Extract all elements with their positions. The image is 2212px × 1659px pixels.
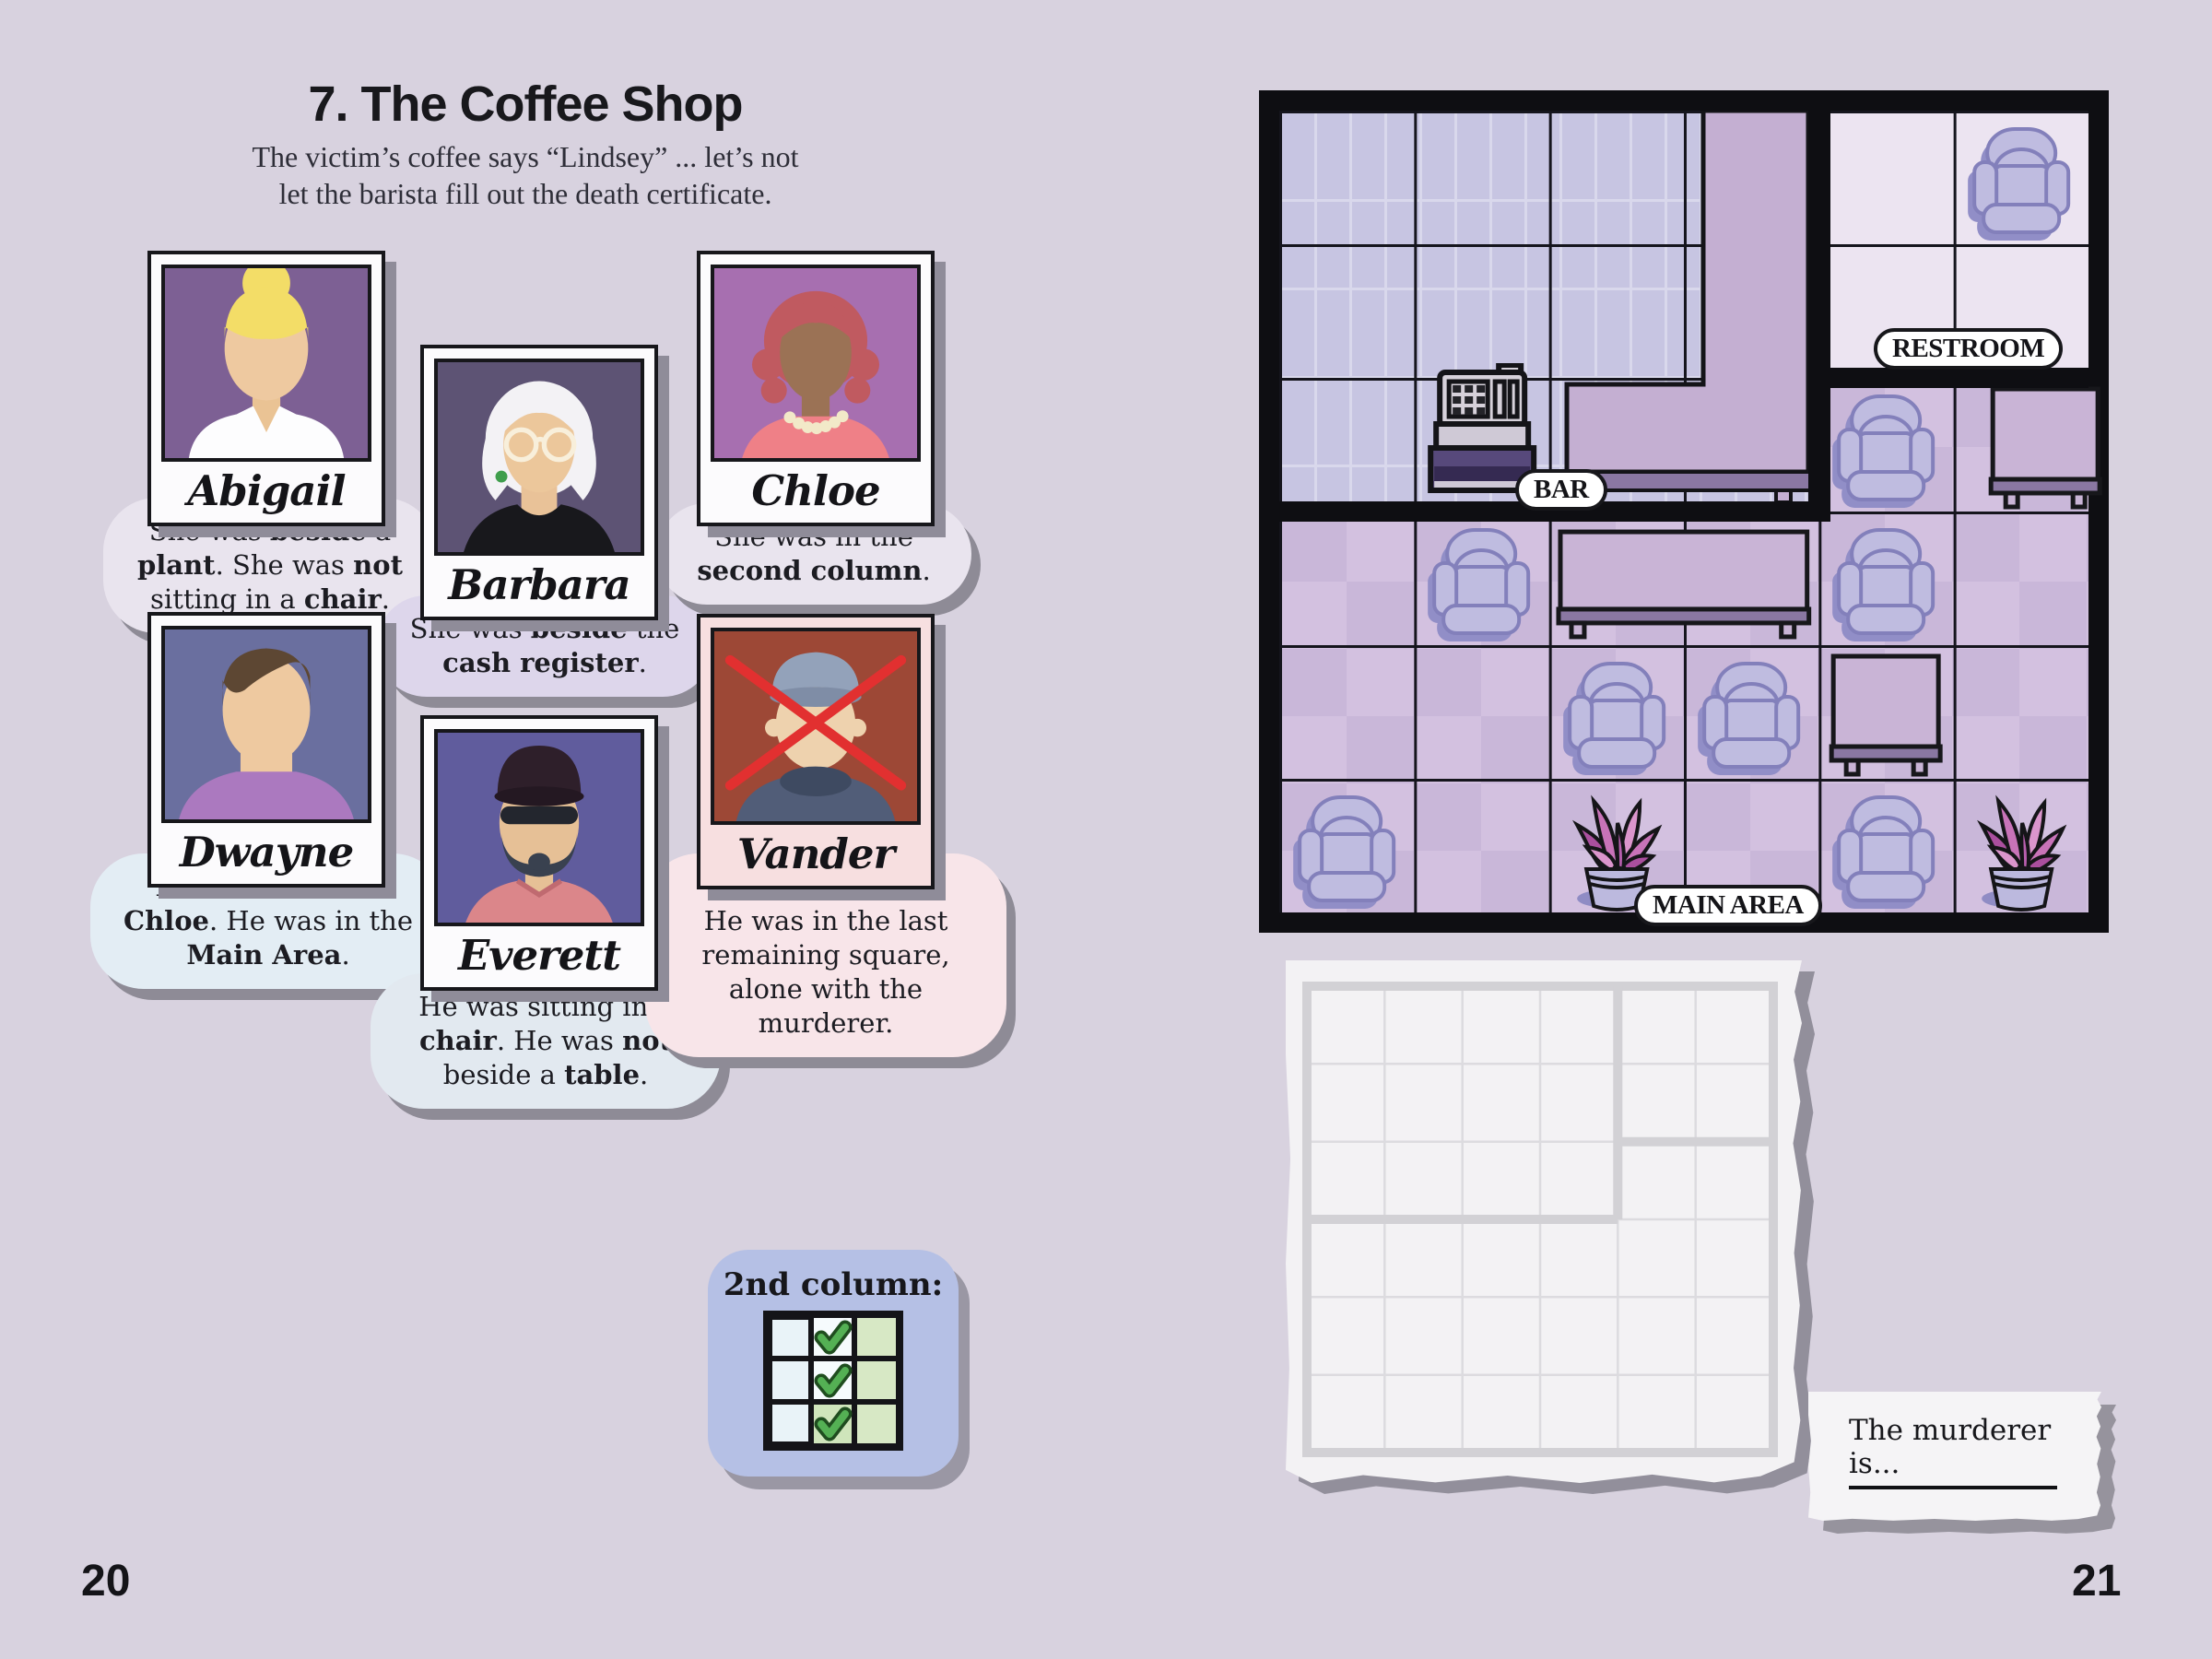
bar-counter-icon — [1549, 111, 1820, 522]
long-table-icon — [1549, 512, 1819, 645]
wall-vertical — [1808, 111, 1830, 522]
table-icon — [1818, 645, 1953, 779]
vander-portrait-icon — [711, 628, 921, 825]
suspect-card-barbara: Barbara — [420, 345, 658, 620]
murderer-note-text: The murderer is... — [1849, 1414, 2101, 1480]
chair-icon — [1818, 512, 1953, 645]
table-icon — [1954, 378, 2088, 512]
wall-under-restroom — [1808, 368, 2088, 388]
plant-icon — [1954, 779, 2088, 912]
chair-icon — [1414, 512, 1548, 645]
suspect-card-dwayne: Dwayne — [147, 612, 385, 888]
suspect-name: Chloe — [711, 462, 921, 519]
dwayne-portrait-icon — [161, 626, 371, 823]
everett-portrait-icon — [434, 729, 644, 926]
restroom-label: RESTROOM — [1874, 328, 2063, 370]
suspect-name: Barbara — [434, 556, 644, 613]
suspect-card-abigail: Abigail — [147, 251, 385, 526]
murderer-note: The murderer is... — [1808, 1392, 2101, 1521]
page-title: 7. The Coffee Shop — [157, 76, 894, 133]
suspect-card-vander: Vander — [697, 614, 935, 889]
suspect-card-chloe: Chloe — [697, 251, 935, 526]
hint-title: 2nd column: — [724, 1266, 943, 1303]
suspect-name: Everett — [434, 926, 644, 983]
suspect-name: Dwayne — [161, 823, 371, 880]
page-number-left: 20 — [81, 1556, 130, 1606]
hint-box: 2nd column: — [708, 1250, 959, 1477]
suspect-name: Vander — [711, 825, 921, 882]
chair-icon — [1279, 779, 1414, 912]
suspect-card-everett: Everett — [420, 715, 658, 991]
chair-icon — [1818, 779, 1953, 912]
column-check-grid-icon — [763, 1311, 903, 1451]
chair-icon — [1549, 645, 1684, 779]
chloe-portrait-icon — [711, 265, 921, 462]
chair-icon — [1684, 645, 1818, 779]
suspect-name: Abigail — [161, 462, 371, 519]
chair-icon — [1818, 378, 1953, 512]
coffee-shop-map: BAR RESTROOM MAIN AREA — [1259, 90, 2109, 933]
main-area-label: MAIN AREA — [1634, 885, 1822, 926]
chair-icon — [1954, 111, 2088, 244]
barbara-portrait-icon — [434, 359, 644, 556]
page-subtitle-line1: The victim’s coffee says “Lindsey” ... l… — [120, 140, 931, 174]
page-number-right: 21 — [2072, 1556, 2121, 1606]
answer-grid[interactable] — [1301, 981, 1779, 1458]
page-subtitle-line2: let the barista fill out the death certi… — [120, 177, 931, 211]
abigail-portrait-icon — [161, 265, 371, 462]
answer-grid-paper[interactable] — [1286, 960, 1802, 1483]
answer-blank-line[interactable] — [1849, 1486, 2057, 1489]
bar-label: BAR — [1515, 469, 1607, 511]
